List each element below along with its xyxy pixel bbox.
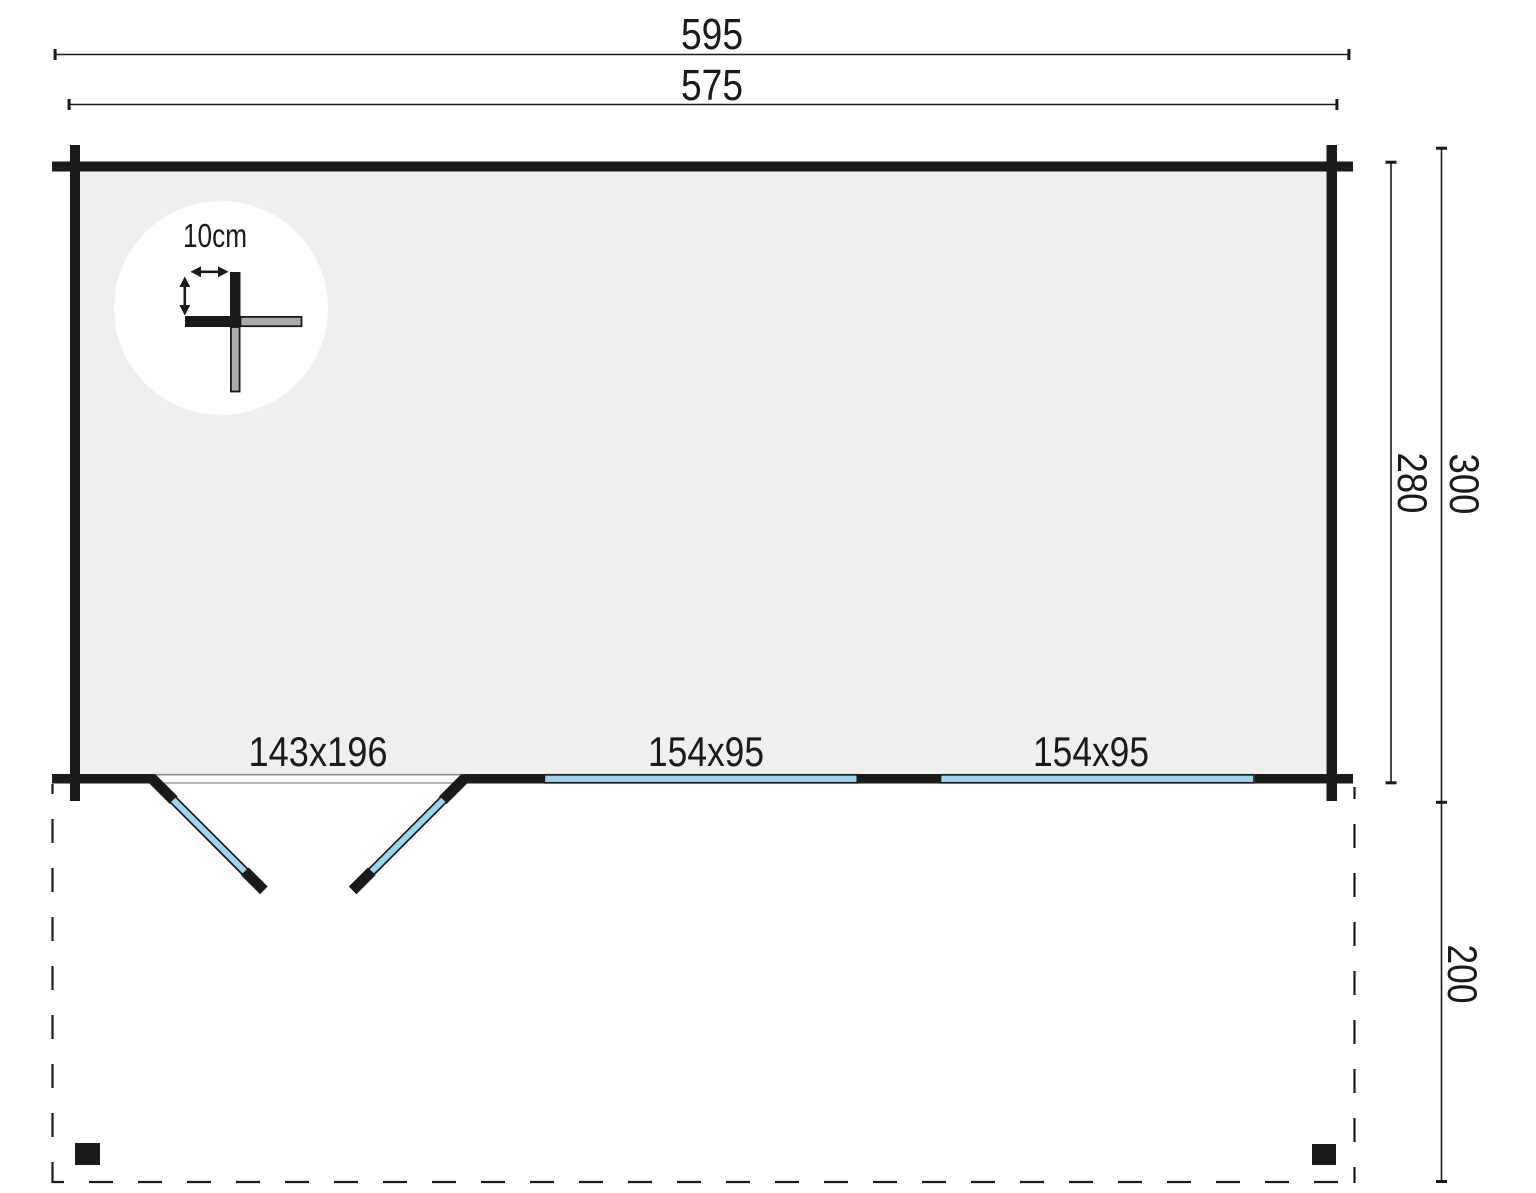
svg-text:300: 300 [1441,454,1488,515]
svg-text:154x95: 154x95 [648,728,764,775]
svg-text:575: 575 [681,61,743,110]
svg-text:595: 595 [681,10,743,59]
svg-text:154x95: 154x95 [1033,728,1149,775]
svg-text:280: 280 [1389,453,1436,514]
svg-text:10cm: 10cm [183,217,247,254]
svg-text:200: 200 [1439,945,1486,1004]
svg-text:143x196: 143x196 [249,728,388,775]
